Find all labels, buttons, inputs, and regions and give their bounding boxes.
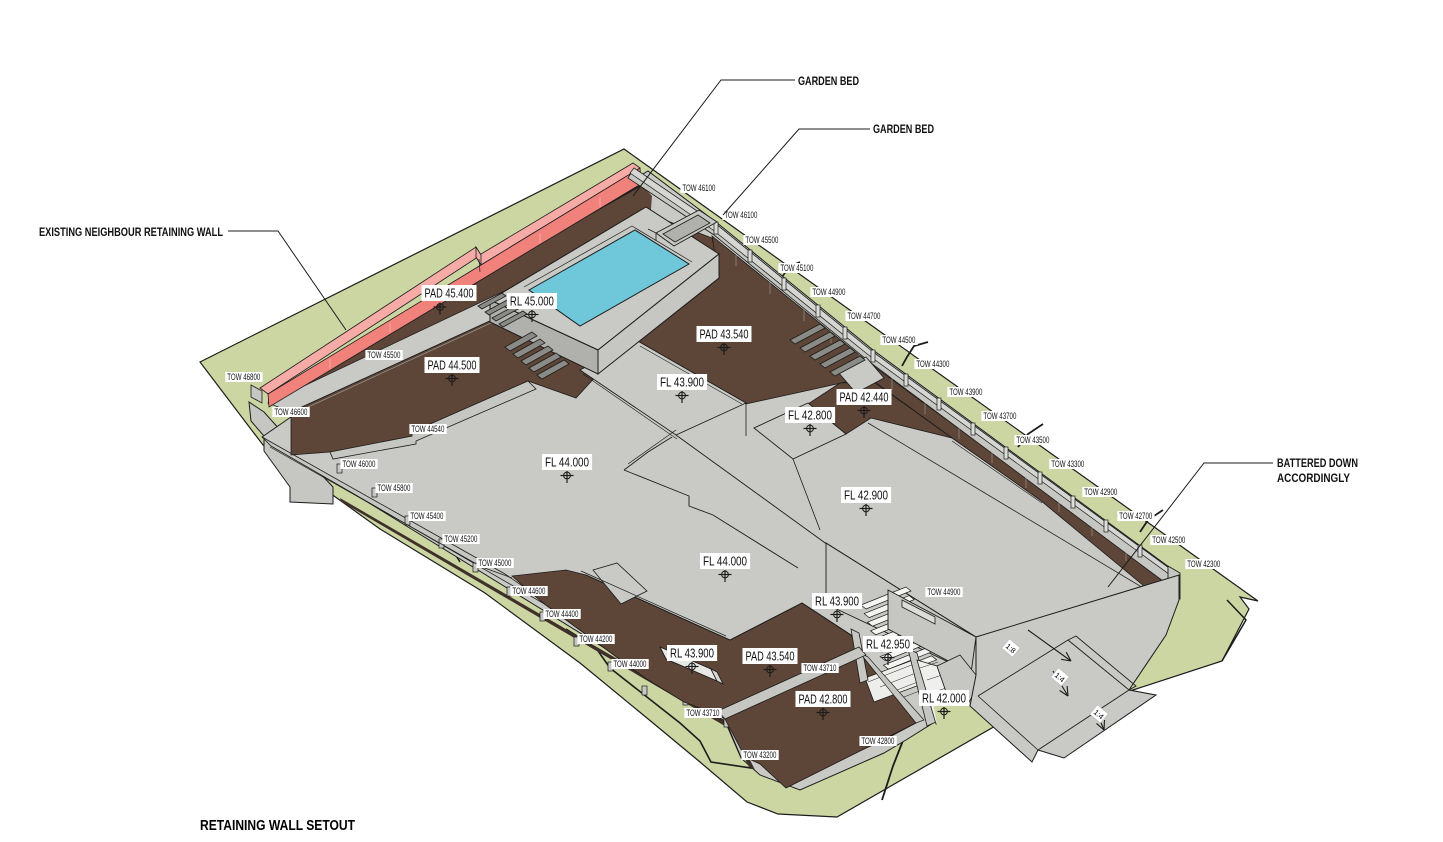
svg-text:TOW 45200: TOW 45200	[444, 534, 477, 544]
svg-text:TOW 45400: TOW 45400	[410, 511, 443, 521]
svg-text:RETAINING WALL SETOUT: RETAINING WALL SETOUT	[200, 818, 355, 834]
svg-text:TOW 42700: TOW 42700	[1119, 511, 1152, 521]
svg-text:TOW 43710: TOW 43710	[803, 663, 836, 673]
svg-text:TOW 43200: TOW 43200	[743, 750, 776, 760]
svg-text:TOW 45100: TOW 45100	[780, 263, 813, 273]
svg-text:EXISTING NEIGHBOUR RETAINING W: EXISTING NEIGHBOUR RETAINING WALL	[39, 225, 223, 239]
svg-text:RL 42.000: RL 42.000	[922, 691, 966, 706]
svg-text:TOW 43710: TOW 43710	[686, 708, 719, 718]
svg-text:FL 44.000: FL 44.000	[545, 455, 589, 470]
svg-text:FL 43.900: FL 43.900	[660, 375, 704, 390]
svg-text:TOW 45800: TOW 45800	[377, 483, 410, 493]
svg-text:RL 45.000: RL 45.000	[510, 294, 554, 309]
svg-text:TOW 44540: TOW 44540	[411, 424, 444, 434]
svg-text:BATTERED DOWN: BATTERED DOWN	[1277, 456, 1358, 470]
svg-text:GARDEN BED: GARDEN BED	[873, 122, 934, 136]
svg-text:TOW 42900: TOW 42900	[1084, 487, 1117, 497]
svg-text:TOW 45500: TOW 45500	[745, 235, 778, 245]
svg-text:TOW 43700: TOW 43700	[983, 411, 1016, 421]
svg-text:FL 42.800: FL 42.800	[788, 408, 832, 423]
svg-text:TOW 43300: TOW 43300	[1051, 459, 1084, 469]
svg-text:TOW 46100: TOW 46100	[682, 183, 715, 193]
svg-text:RL 42.950: RL 42.950	[866, 637, 910, 652]
svg-text:TOW 44200: TOW 44200	[579, 634, 612, 644]
svg-text:TOW 46000: TOW 46000	[342, 459, 375, 469]
svg-text:TOW 42300: TOW 42300	[1187, 559, 1220, 569]
svg-text:TOW 44900: TOW 44900	[927, 587, 960, 597]
svg-text:TOW 46100: TOW 46100	[724, 210, 757, 220]
svg-text:TOW 44500: TOW 44500	[882, 335, 915, 345]
svg-text:PAD 43.540: PAD 43.540	[746, 649, 795, 664]
svg-text:FL 44.000: FL 44.000	[703, 554, 747, 569]
svg-text:TOW 43500: TOW 43500	[1016, 435, 1049, 445]
svg-text:RL 43.900: RL 43.900	[815, 594, 859, 609]
svg-text:TOW 46600: TOW 46600	[274, 407, 307, 417]
svg-text:TOW 44000: TOW 44000	[613, 659, 646, 669]
svg-text:PAD 43.540: PAD 43.540	[700, 327, 749, 342]
svg-text:TOW 42800: TOW 42800	[861, 736, 894, 746]
svg-text:TOW 42500: TOW 42500	[1152, 535, 1185, 545]
svg-text:TOW 44400: TOW 44400	[545, 609, 578, 619]
svg-text:TOW 45000: TOW 45000	[478, 558, 511, 568]
svg-text:TOW 43900: TOW 43900	[949, 387, 982, 397]
svg-text:TOW 44900: TOW 44900	[812, 287, 845, 297]
svg-text:TOW 46800: TOW 46800	[227, 372, 260, 382]
svg-text:TOW 44600: TOW 44600	[512, 586, 545, 596]
svg-text:TOW 44300: TOW 44300	[916, 359, 949, 369]
svg-text:GARDEN BED: GARDEN BED	[798, 74, 859, 88]
svg-text:ACCORDINGLY: ACCORDINGLY	[1277, 471, 1350, 485]
svg-text:PAD 42.800: PAD 42.800	[799, 692, 848, 707]
svg-text:TOW 44700: TOW 44700	[847, 311, 880, 321]
svg-text:PAD 45.400: PAD 45.400	[425, 286, 474, 301]
svg-text:FL 42.900: FL 42.900	[844, 488, 888, 503]
svg-text:PAD 42.440: PAD 42.440	[840, 390, 889, 405]
svg-text:RL 43.900: RL 43.900	[670, 646, 714, 661]
svg-text:TOW 45500: TOW 45500	[367, 350, 400, 360]
svg-text:PAD 44.500: PAD 44.500	[428, 358, 477, 373]
